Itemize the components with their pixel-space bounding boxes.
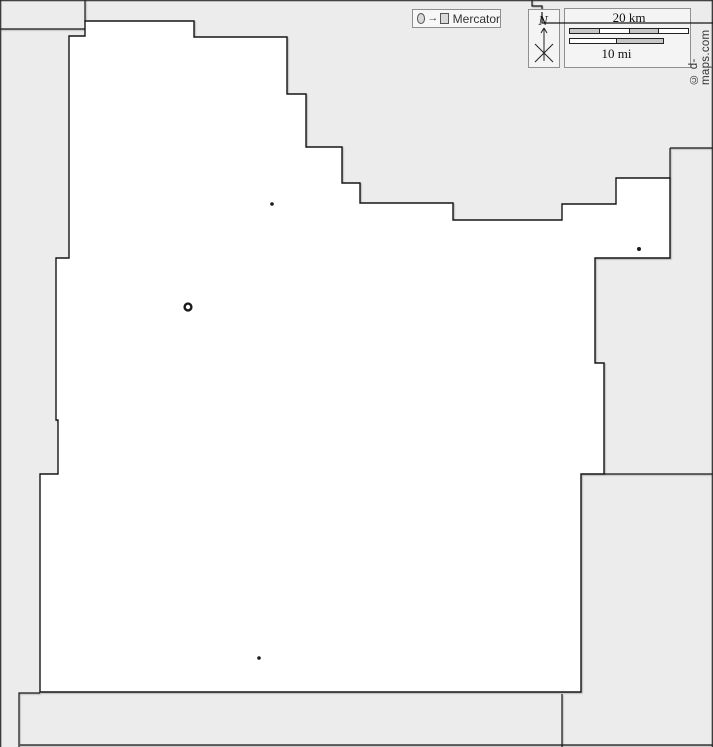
compass-north-label: N xyxy=(537,14,548,29)
circle-symbol-icon xyxy=(417,13,425,24)
neighbor-boundary-line xyxy=(670,148,713,179)
scale-bar: 20 km 10 mi xyxy=(564,8,691,68)
scale-segment xyxy=(570,39,616,43)
scale-km-bar xyxy=(569,28,689,34)
county-boundary xyxy=(40,21,670,692)
scale-segment xyxy=(616,39,663,43)
scale-km-label: 20 km xyxy=(569,11,689,25)
base-map-svg xyxy=(0,0,713,747)
city-ring-marker xyxy=(185,304,192,311)
town-dot-marker xyxy=(257,656,261,660)
compass-svg: N xyxy=(529,10,559,67)
town-dot-marker xyxy=(270,202,274,206)
boundary-lines-group xyxy=(0,0,713,747)
projection-legend: → Mercator xyxy=(412,9,501,28)
scale-mi-label: 10 mi xyxy=(569,47,664,61)
map-canvas: → Mercator N 20 km 10 mi © d-maps.c xyxy=(0,0,713,747)
copyright-watermark: © d-maps.com xyxy=(688,5,712,85)
compass-needle-icon xyxy=(535,28,553,62)
town-dot-marker xyxy=(637,247,641,251)
arrow-right-icon: → xyxy=(427,13,438,24)
scale-segment xyxy=(570,29,599,33)
projection-name-label: Mercator xyxy=(453,13,500,25)
scale-segment xyxy=(658,29,688,33)
scale-mi-bar xyxy=(569,38,664,44)
scale-segment xyxy=(599,29,629,33)
square-symbol-icon xyxy=(440,13,448,24)
compass-rose: N xyxy=(528,9,560,68)
scale-segment xyxy=(629,29,659,33)
neighbor-boundary-line xyxy=(19,693,40,747)
